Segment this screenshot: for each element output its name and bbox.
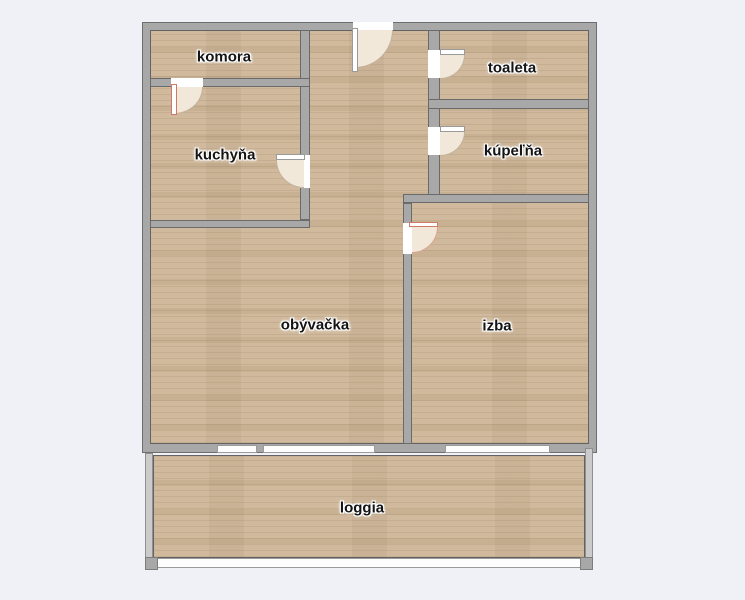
kupelna-door-opening: [428, 127, 440, 155]
kitchen-door-leaf: [276, 154, 305, 160]
floor-plan: komora kuchyňa toaleta kúpeľňa obývačka …: [0, 0, 745, 600]
room-label-toaleta: toaleta: [488, 60, 536, 77]
room-label-obyvacka: obývačka: [281, 317, 349, 334]
kupelna-door-leaf: [440, 126, 465, 132]
room-label-izba: izba: [482, 318, 511, 335]
entry-door-leaf: [352, 28, 358, 72]
apartment-floor: [150, 30, 589, 444]
wall-toaleta-bottom: [428, 99, 589, 109]
loggia-corner-post-right: [580, 557, 593, 570]
room-label-kupelna: kúpeľňa: [484, 143, 542, 160]
obyvacka-window-left: [217, 445, 257, 453]
room-label-kuchyna: kuchyňa: [195, 147, 256, 164]
izba-door-opening: [403, 223, 412, 254]
room-label-loggia: loggia: [340, 500, 384, 517]
toaleta-door-opening: [428, 50, 440, 78]
wall-izba-top: [403, 194, 589, 203]
komora-door-leaf: [171, 84, 177, 115]
loggia-wall-right: [585, 448, 593, 560]
wall-kitchen-bottom: [150, 220, 310, 228]
loggia-window-band: [153, 558, 585, 568]
room-label-komora: komora: [197, 49, 251, 66]
izba-door-leaf: [409, 222, 438, 227]
izba-window: [445, 445, 550, 453]
obyvacka-window-right: [263, 445, 375, 453]
wall-komora-kitchen-right: [300, 30, 310, 220]
loggia-wall-left: [145, 453, 153, 560]
loggia-corner-post-left: [145, 557, 158, 570]
toaleta-door-leaf: [440, 49, 465, 55]
